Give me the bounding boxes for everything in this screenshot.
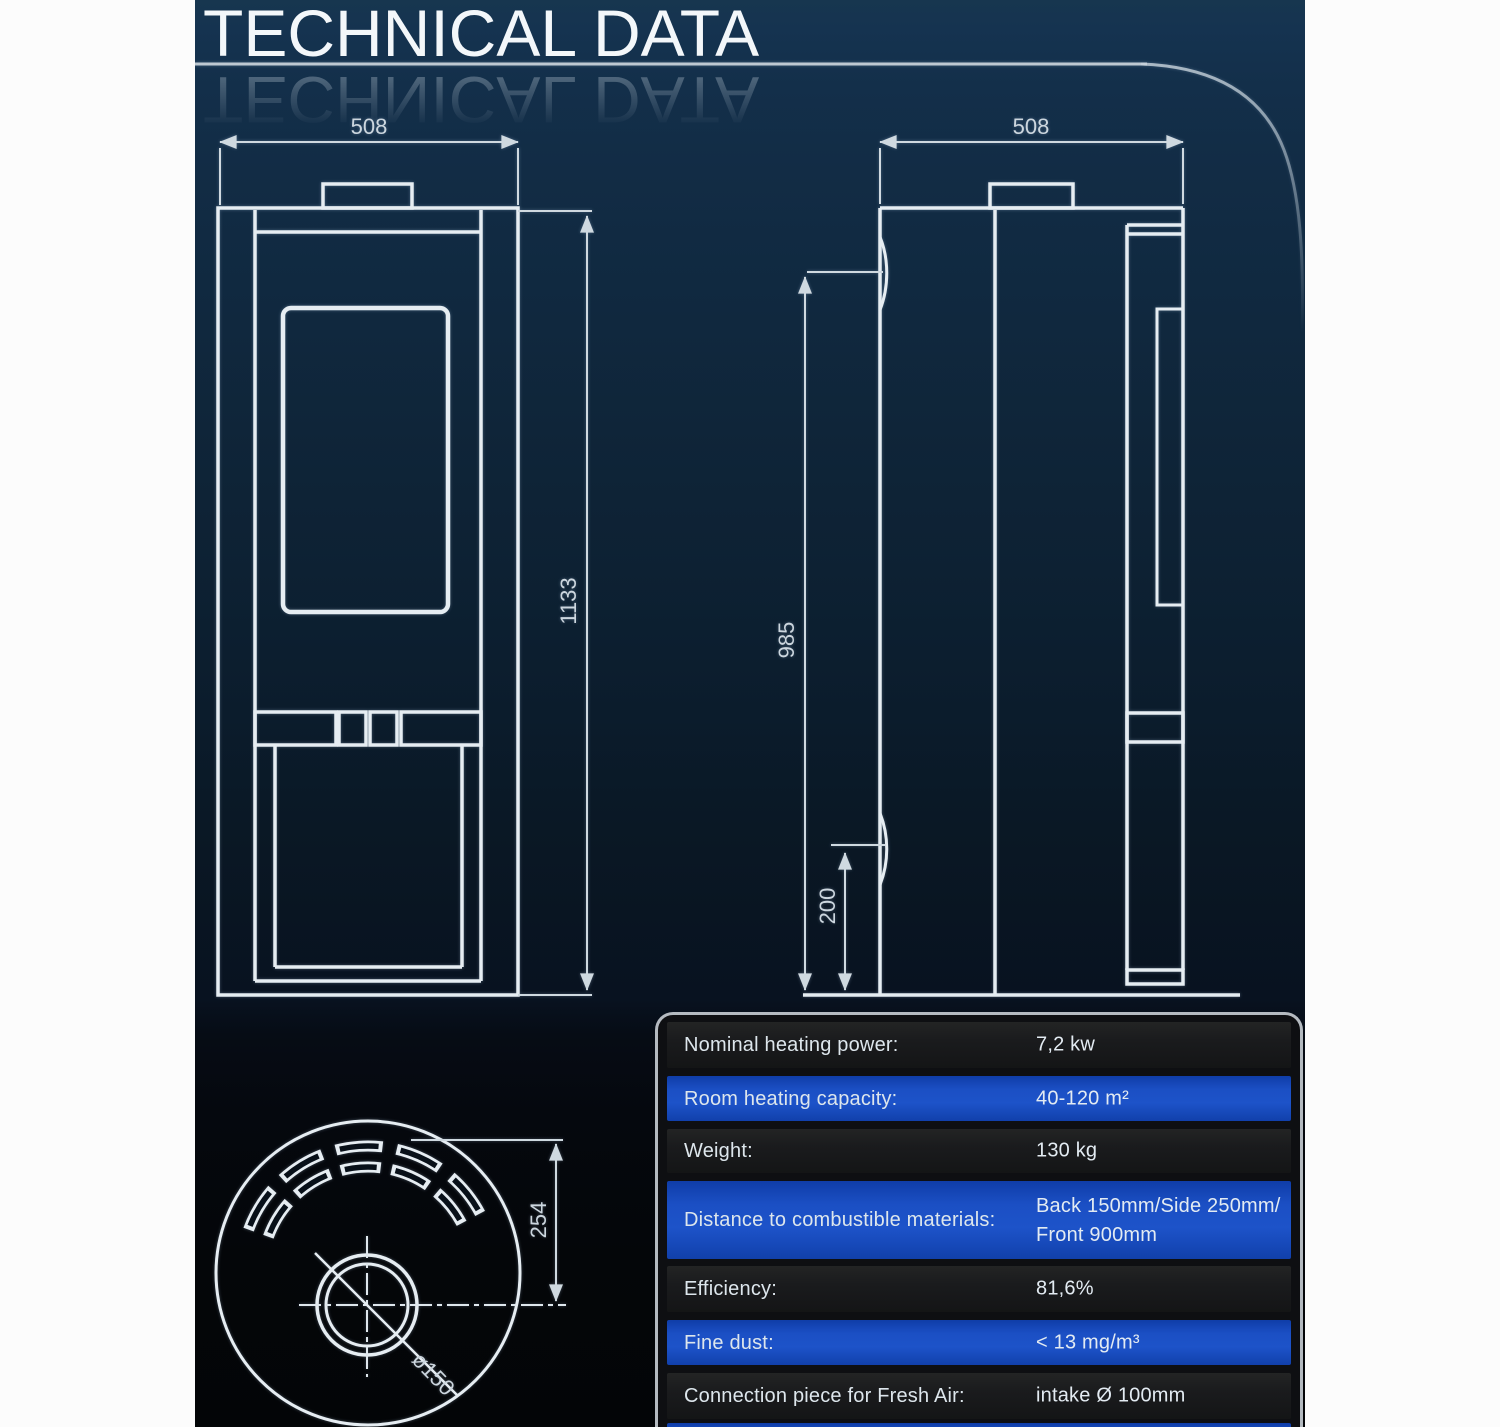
spec-label: Weight: — [684, 1139, 753, 1163]
datasheet-panel: TECHNICAL DATA TECHNICAL DATA — [195, 0, 1305, 1427]
top-flue-diameter-label: ø150 — [407, 1347, 460, 1400]
spec-label: Connection piece for Fresh Air: — [684, 1384, 965, 1408]
table-row: Fine dust: < 13 mg/m³ — [667, 1320, 1291, 1365]
table-row: Nominal heating power: 7,2 kw — [667, 1022, 1291, 1068]
front-view-drawing: 508 1133 — [218, 114, 592, 995]
spec-label: Nominal heating power: — [684, 1033, 899, 1057]
spec-value: 130 kg — [1036, 1140, 1097, 1163]
page-title: TECHNICAL DATA — [203, 2, 759, 64]
spec-label: Distance to combustible materials: — [684, 1208, 995, 1232]
front-height-label: 1133 — [556, 577, 581, 624]
table-row: Connection piece for Fresh Air: intake Ø… — [667, 1373, 1291, 1419]
spec-label: Fine dust: — [684, 1331, 774, 1355]
spec-value: 81,6% — [1036, 1278, 1094, 1301]
spec-label: Efficiency: — [684, 1277, 777, 1301]
side-view-drawing: 508 985 200 — [774, 114, 1240, 995]
top-view-drawing: ø150 254 — [216, 1121, 566, 1425]
front-width-label: 508 — [351, 114, 388, 139]
spec-value: 7,2 kw — [1036, 1034, 1095, 1057]
spec-table: Nominal heating power: 7,2 kw Room heati… — [655, 1012, 1303, 1427]
side-height-label: 985 — [774, 622, 799, 659]
spec-value: intake Ø 100mm — [1036, 1385, 1186, 1408]
spec-value-line1: Back 150mm/Side 250mm/ — [1036, 1192, 1281, 1221]
side-base-label: 200 — [815, 888, 840, 925]
spec-label: Room heating capacity: — [684, 1087, 897, 1111]
spec-value: < 13 mg/m³ — [1036, 1331, 1140, 1354]
table-row: Distance to combustible materials: Back … — [667, 1181, 1291, 1259]
top-offset-label: 254 — [526, 1202, 551, 1239]
title-underline — [195, 64, 1302, 332]
spec-value: Back 150mm/Side 250mm/ Front 900mm — [1036, 1192, 1281, 1250]
table-row: Room heating capacity: 40-120 m² — [667, 1076, 1291, 1121]
spec-value-line2: Front 900mm — [1036, 1221, 1281, 1250]
side-depth-label: 508 — [1013, 114, 1050, 139]
table-row: Weight: 130 kg — [667, 1129, 1291, 1173]
spec-value: 40-120 m² — [1036, 1087, 1129, 1110]
table-row: Efficiency: 81,6% — [667, 1266, 1291, 1312]
table-row-partial — [667, 1423, 1291, 1427]
